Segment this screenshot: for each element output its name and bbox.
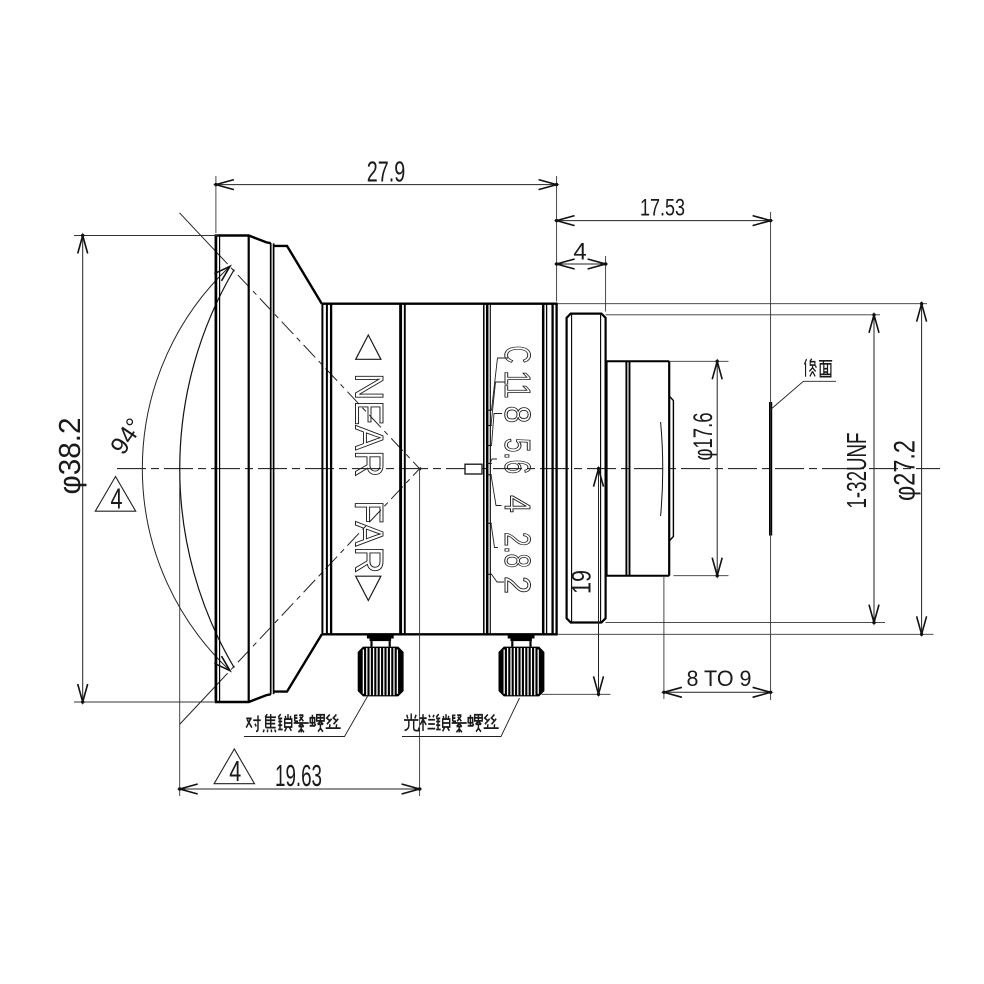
svg-text:2: 2	[497, 576, 538, 594]
svg-text:11: 11	[497, 371, 538, 399]
svg-text:C: C	[497, 346, 538, 364]
svg-text:8: 8	[497, 406, 538, 424]
svg-text:4: 4	[573, 239, 586, 266]
svg-text:27.9: 27.9	[367, 157, 406, 189]
svg-text:NEAR: NEAR	[347, 373, 391, 477]
svg-text:4: 4	[497, 495, 538, 513]
svg-text:4: 4	[111, 484, 123, 516]
svg-text:φ27.2: φ27.2	[889, 440, 922, 501]
svg-text:19: 19	[567, 570, 597, 594]
svg-text:φ17.6: φ17.6	[688, 413, 718, 461]
svg-text:5.6: 5.6	[497, 438, 538, 474]
svg-text:1-32UNF: 1-32UNF	[841, 433, 872, 509]
svg-text:8 TO 9: 8 TO 9	[687, 666, 752, 691]
svg-text:FAR: FAR	[347, 501, 391, 574]
svg-text:17.53: 17.53	[640, 195, 685, 222]
svg-text:2.8: 2.8	[497, 532, 538, 568]
svg-text:φ38.2: φ38.2	[52, 418, 87, 495]
svg-text:19.63: 19.63	[275, 758, 322, 793]
svg-text:4: 4	[229, 756, 241, 788]
